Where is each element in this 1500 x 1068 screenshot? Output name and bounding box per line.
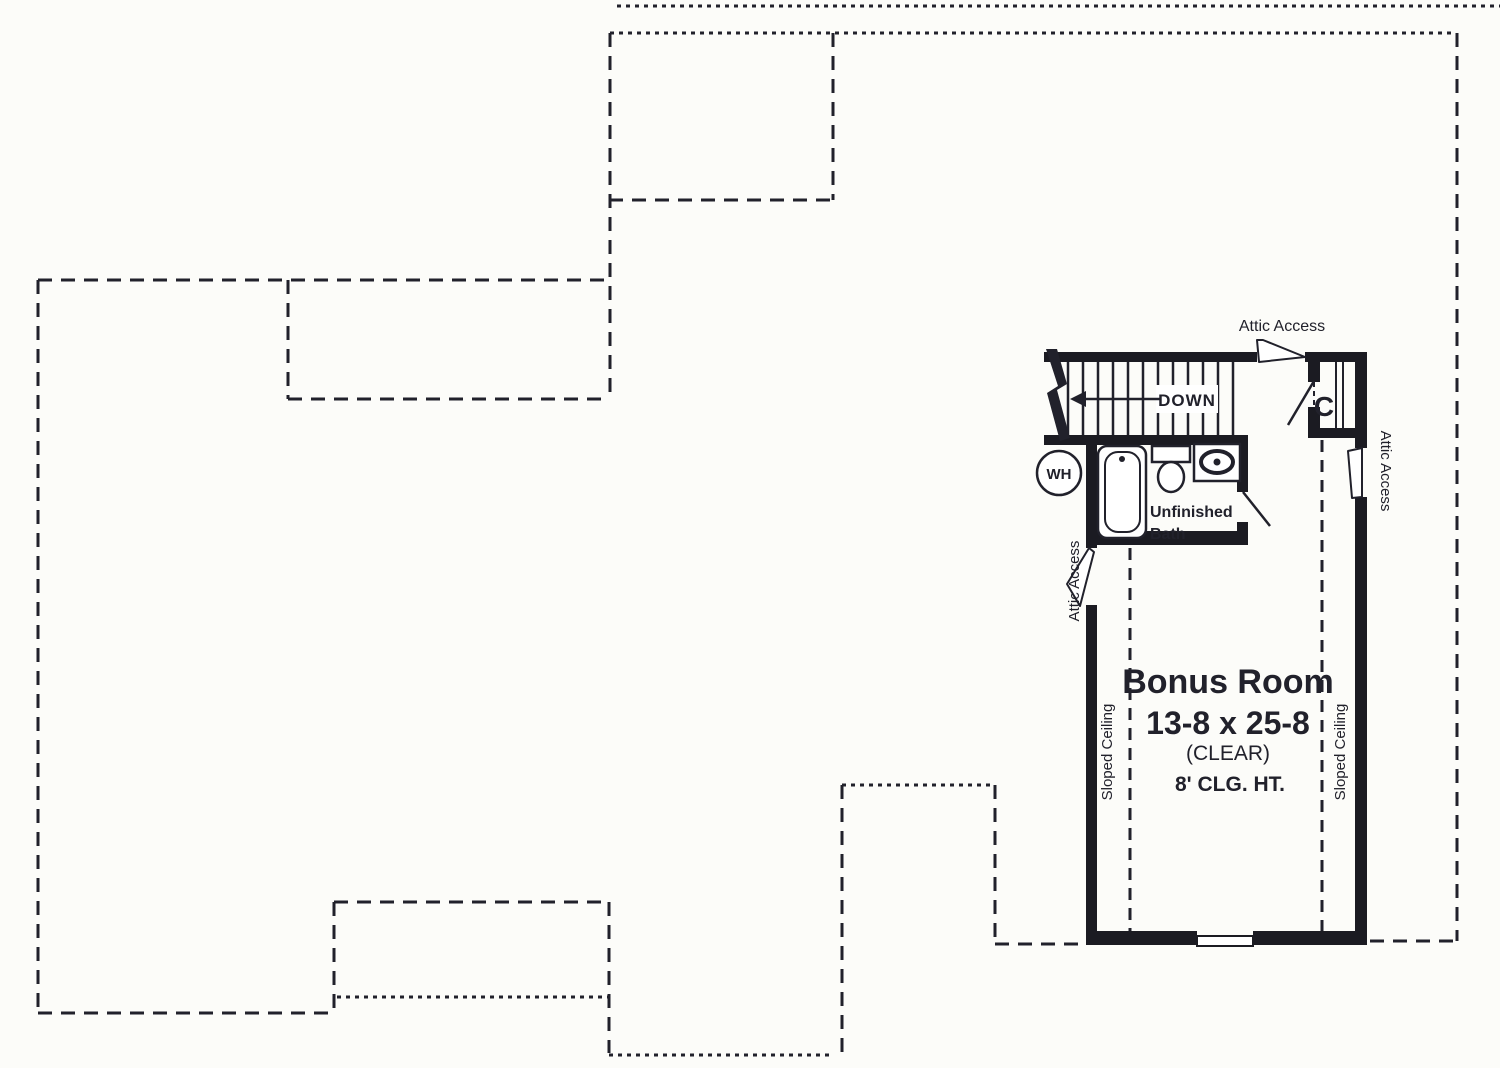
attic-access-top-flap xyxy=(1257,340,1305,362)
stairs: DOWN xyxy=(1046,349,1233,441)
attic-access-top-label: Attic Access xyxy=(1239,318,1325,335)
bonus-room-clear: (CLEAR) xyxy=(1186,742,1270,765)
bonus-room-window xyxy=(1197,936,1253,946)
bonus-room-dimensions: 13-8 x 25-8 xyxy=(1146,705,1310,741)
attic-access-right-flap xyxy=(1348,448,1362,498)
water-heater: WH xyxy=(1037,451,1081,495)
attic-access-right-label: Attic Access xyxy=(1377,431,1394,512)
bath-label-line2: Bath xyxy=(1150,526,1186,543)
down-arrow xyxy=(1070,391,1160,407)
bonus-room-labels: Bonus Room 13-8 x 25-8 (CLEAR) 8' CLG. H… xyxy=(1099,663,1349,800)
bonus-room-walls xyxy=(1044,352,1367,945)
bonus-room-name: Bonus Room xyxy=(1122,663,1334,701)
bath-door-leaf xyxy=(1243,492,1270,526)
down-label: DOWN xyxy=(1158,391,1216,410)
water-heater-label: WH xyxy=(1047,466,1072,483)
roof-outline-fine-dashes xyxy=(337,6,1500,1055)
toilet xyxy=(1152,446,1190,492)
stair-break-symbol xyxy=(1046,349,1070,441)
floor-plan-page: DOWN WH Unfinished Bath xyxy=(0,0,1500,1068)
bath-label-line1: Unfinished xyxy=(1150,504,1233,521)
second-floor-plan-drawing: DOWN WH Unfinished Bath xyxy=(0,0,1500,1068)
closet-label: C xyxy=(1314,391,1334,422)
bathtub xyxy=(1098,446,1146,538)
bonus-room-ceiling-height: 8' CLG. HT. xyxy=(1175,773,1285,796)
attic-access-left-label: Attic Access xyxy=(1066,541,1083,622)
attic-access-right: Attic Access xyxy=(1348,431,1394,512)
sloped-ceiling-right-label: Sloped Ceiling xyxy=(1332,704,1349,801)
sink xyxy=(1194,444,1240,481)
sloped-ceiling-left-label: Sloped Ceiling xyxy=(1099,704,1116,801)
